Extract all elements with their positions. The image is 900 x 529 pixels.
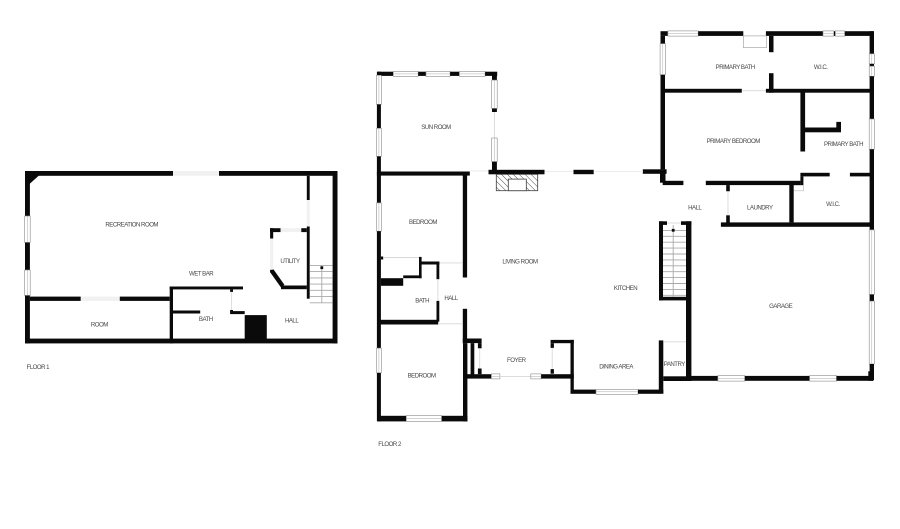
svg-text:FLOOR 1: FLOOR 1 (27, 364, 51, 371)
svg-text:ROOM: ROOM (91, 322, 108, 329)
svg-text:WET BAR: WET BAR (189, 271, 214, 278)
svg-text:W.I.C.: W.I.C. (826, 201, 840, 208)
svg-text:BATH: BATH (199, 316, 213, 323)
svg-text:HALL: HALL (285, 318, 299, 325)
svg-text:SUN ROOM: SUN ROOM (421, 124, 451, 131)
svg-text:FLOOR 2: FLOOR 2 (378, 441, 402, 448)
svg-text:BEDROOM: BEDROOM (408, 372, 436, 379)
svg-text:RECREATION ROOM: RECREATION ROOM (105, 222, 158, 229)
svg-text:PANTRY: PANTRY (664, 361, 686, 368)
svg-text:LAUNDRY: LAUNDRY (747, 205, 773, 212)
svg-text:FOYER: FOYER (507, 357, 527, 364)
svg-text:PRIMARY BATH: PRIMARY BATH (716, 64, 755, 71)
svg-text:W.I.C.: W.I.C. (814, 64, 828, 71)
svg-text:PRIMARY BEDROOM: PRIMARY BEDROOM (707, 138, 761, 145)
svg-text:PRIMARY BATH: PRIMARY BATH (824, 141, 863, 148)
svg-text:HALL: HALL (688, 205, 702, 212)
svg-text:BEDROOM: BEDROOM (409, 219, 437, 226)
svg-text:DINING AREA: DINING AREA (599, 363, 634, 370)
svg-text:KITCHEN: KITCHEN (614, 285, 637, 292)
svg-text:BATH: BATH (415, 298, 429, 305)
svg-text:HALL: HALL (444, 295, 458, 302)
svg-text:LIVING ROOM: LIVING ROOM (502, 258, 538, 265)
svg-text:GARAGE: GARAGE (769, 303, 793, 310)
svg-text:UTILITY: UTILITY (280, 258, 300, 265)
